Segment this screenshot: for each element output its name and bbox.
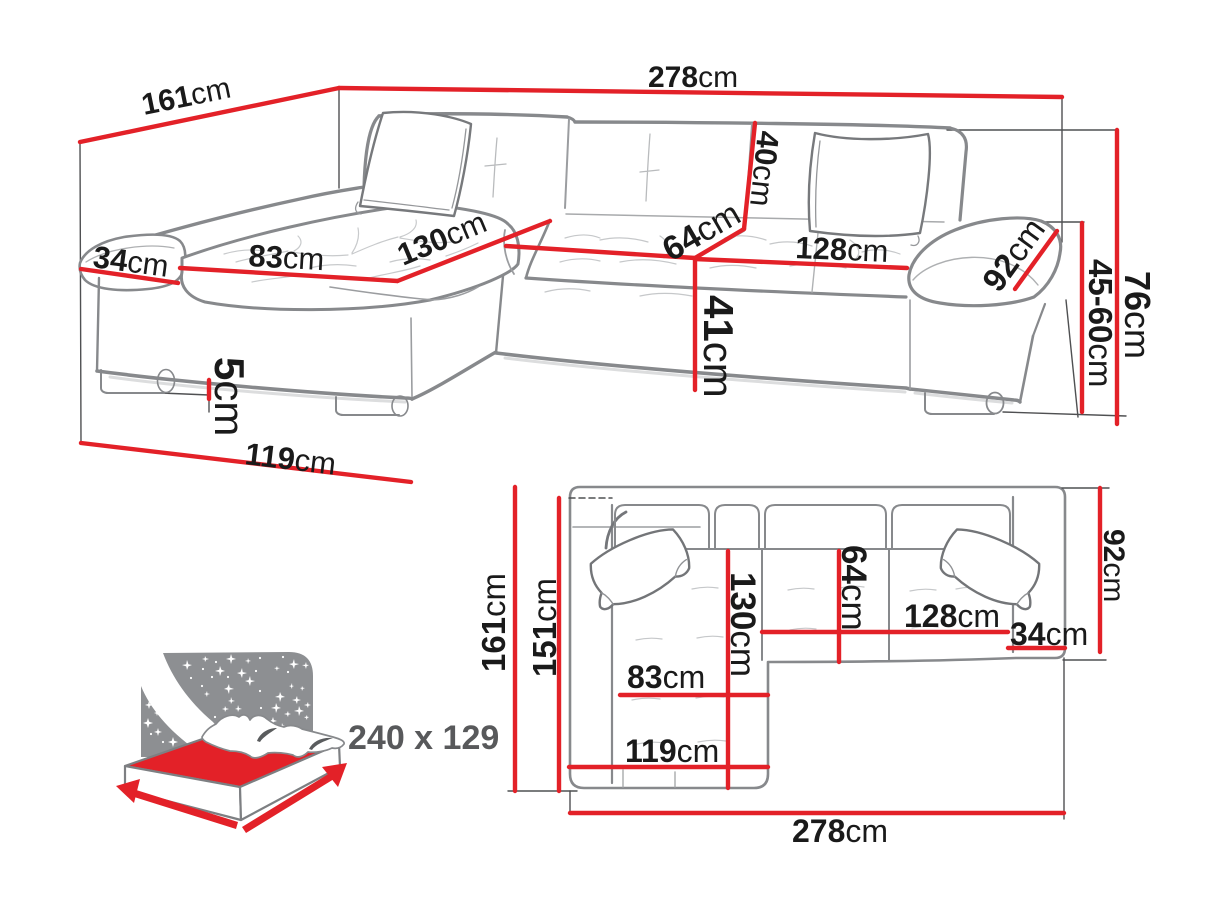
svg-text:76cm: 76cm xyxy=(1117,271,1158,359)
svg-text:161cm: 161cm xyxy=(475,573,512,672)
svg-text:151cm: 151cm xyxy=(526,578,563,677)
svg-text:34cm: 34cm xyxy=(1010,616,1088,652)
svg-text:278cm: 278cm xyxy=(792,813,888,849)
svg-text:83cm: 83cm xyxy=(627,659,705,695)
svg-text:119cm: 119cm xyxy=(625,733,719,769)
svg-text:130cm: 130cm xyxy=(723,572,762,677)
svg-text:278cm: 278cm xyxy=(648,61,738,94)
svg-text:41cm: 41cm xyxy=(695,295,742,398)
svg-text:128cm: 128cm xyxy=(904,598,1000,634)
svg-text:92cm: 92cm xyxy=(1097,529,1130,602)
svg-text:240 x 129: 240 x 129 xyxy=(348,719,499,757)
svg-text:83cm: 83cm xyxy=(248,238,326,277)
svg-text:45-60cm: 45-60cm xyxy=(1082,259,1119,387)
svg-text:64cm: 64cm xyxy=(834,545,873,631)
svg-text:128cm: 128cm xyxy=(795,230,889,269)
svg-text:5cm: 5cm xyxy=(206,357,253,436)
